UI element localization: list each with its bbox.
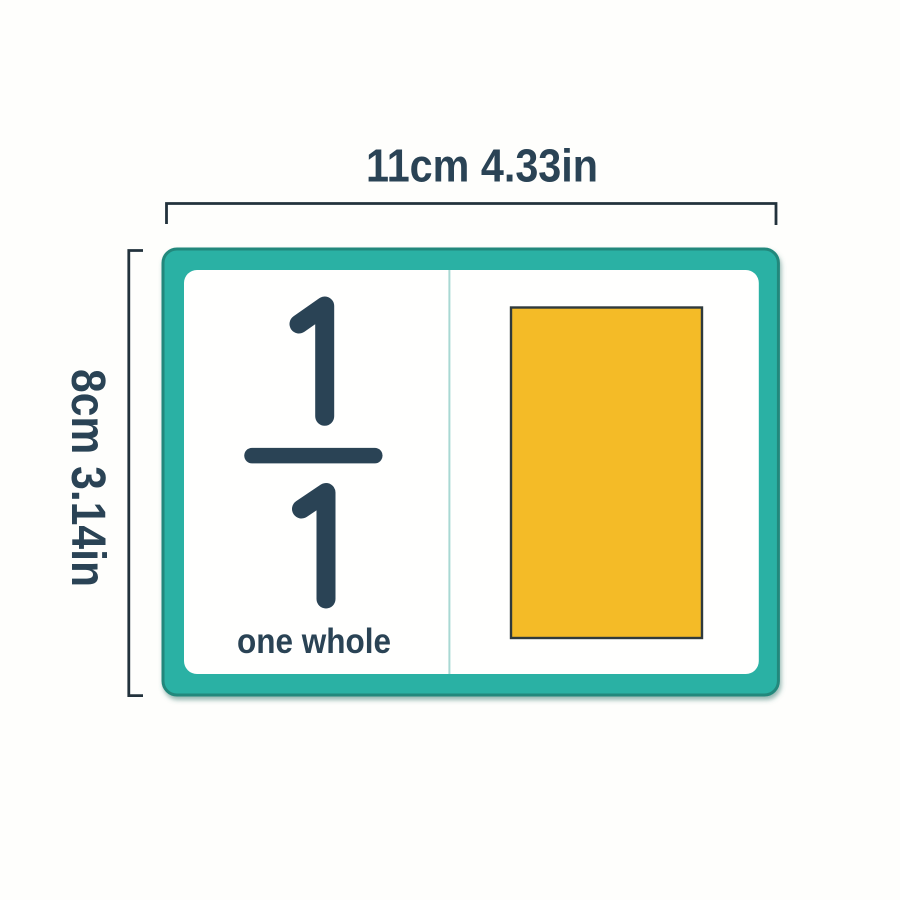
svg-text:11cm 4.33in: 11cm 4.33in xyxy=(366,140,598,192)
svg-text:one whole: one whole xyxy=(237,622,391,661)
svg-text:8cm 3.14in: 8cm 3.14in xyxy=(61,369,114,587)
